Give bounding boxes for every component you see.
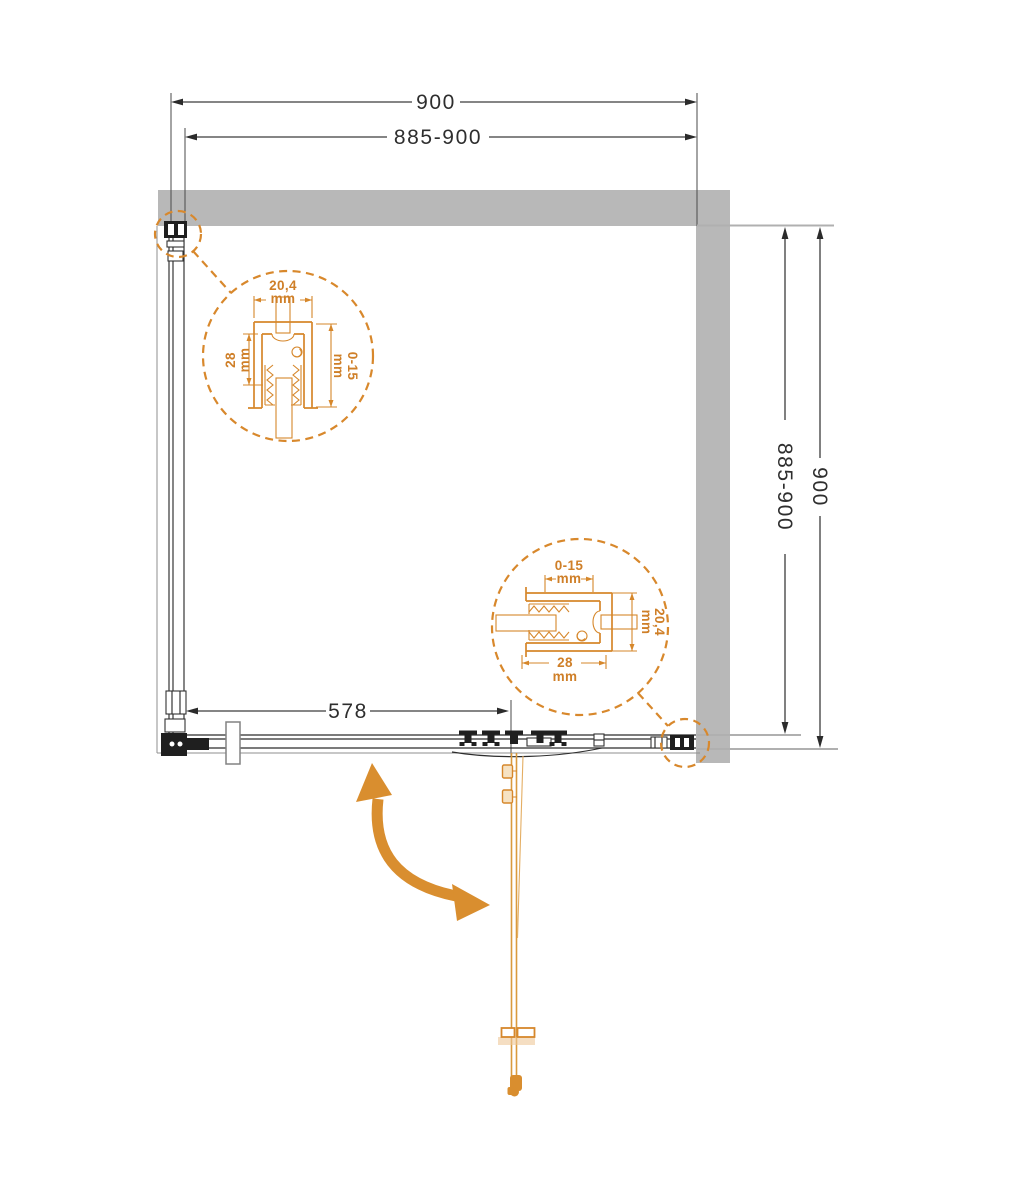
svg-text:mm: mm — [237, 348, 252, 373]
detail-callout-bottom-right: 0-15 mm 20,4 mm 28 mm — [492, 539, 709, 767]
dimension-side-inner: 885-900 — [773, 227, 796, 734]
top-wall — [158, 190, 730, 226]
door-swing-arrow — [356, 763, 490, 921]
svg-text:mm: mm — [553, 669, 578, 684]
callout-leader-top — [193, 251, 231, 293]
svg-text:mm: mm — [557, 571, 582, 586]
door-end-cap — [508, 1075, 523, 1097]
door-hinge-bottom — [503, 790, 513, 803]
swing-arrowhead-up-icon — [356, 763, 392, 802]
detail-callout-top-left: 20,4 mm 28 mm 0-15 mm — [155, 211, 373, 441]
dimension-top-inner: 885-900 — [185, 126, 697, 149]
detail-a-width-dim: 20,4 mm — [254, 278, 312, 318]
detail-b-depth-dim: 28 mm — [522, 655, 606, 684]
detail-a-adjust-dim: 0-15 mm — [316, 324, 360, 407]
dim-top-inner-label: 885-900 — [394, 126, 482, 149]
dimension-side-outer: 900 — [808, 227, 831, 748]
left-fixed-panel — [157, 221, 187, 753]
dim-side-inner-label: 885-900 — [773, 443, 796, 531]
callout-leader-bottom — [638, 693, 668, 726]
svg-text:28: 28 — [223, 352, 238, 368]
bottom-fixed-panel — [157, 719, 700, 764]
door-hinge-top — [503, 765, 513, 778]
walls — [158, 190, 730, 763]
bottom-wall-profile — [651, 735, 694, 750]
dim-door-width-label: 578 — [328, 700, 368, 723]
detail-b-width-dim: 20,4 mm — [612, 593, 667, 651]
detail-b-adjust-dim: 0-15 mm — [545, 558, 593, 592]
svg-text:mm: mm — [271, 291, 296, 306]
dimension-door-width: 578 — [186, 700, 509, 723]
dimension-top-outer: 900 — [171, 91, 697, 114]
dim-side-outer-label: 900 — [808, 467, 831, 507]
right-wall — [696, 226, 730, 763]
wall-profile-section-bottom — [496, 587, 637, 657]
svg-text:mm: mm — [639, 610, 654, 635]
wall-profile-section-top — [248, 297, 318, 438]
dim-top-outer-label: 900 — [416, 91, 456, 114]
svg-text:28: 28 — [557, 655, 573, 670]
detail-a-depth-dim: 28 mm — [223, 334, 263, 385]
pivot-door — [498, 753, 535, 1097]
svg-text:mm: mm — [331, 354, 346, 379]
swing-arrowhead-right-icon — [452, 884, 490, 921]
installation-diagram: 900 885-900 885-900 900 578 — [0, 0, 1029, 1180]
svg-text:0-15: 0-15 — [345, 352, 360, 381]
